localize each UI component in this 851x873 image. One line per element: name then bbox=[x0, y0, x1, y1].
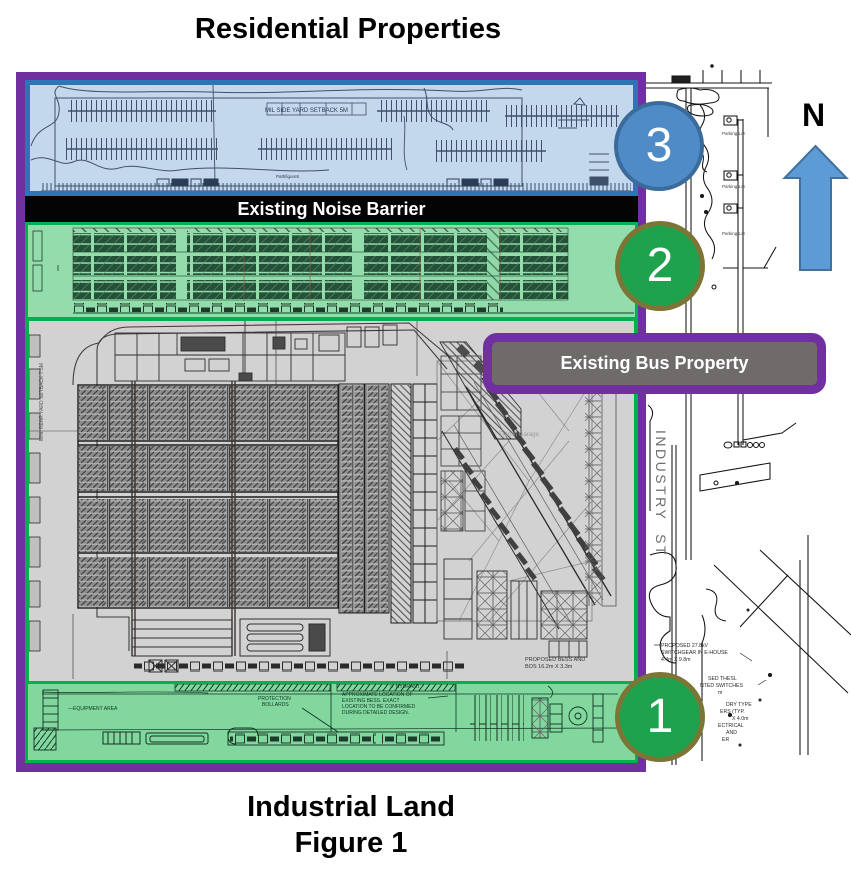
svg-text:SED THESL: SED THESL bbox=[708, 676, 737, 682]
svg-text:Parking Lot: Parking Lot bbox=[722, 131, 746, 136]
svg-text:NTED SWITCHES: NTED SWITCHES bbox=[700, 683, 743, 689]
svg-text:BOS 16.2m X 3.3m: BOS 16.2m X 3.3m bbox=[525, 664, 573, 670]
svg-text:□ HYDRANT: □ HYDRANT bbox=[390, 684, 420, 690]
svg-text:MIL SIDE YARD SETBACK 5M: MIL SIDE YARD SETBACK 5M bbox=[265, 108, 348, 114]
svg-text:BOLLARDS: BOLLARDS bbox=[262, 702, 289, 708]
svg-text:ERS (TYP.: ERS (TYP. bbox=[720, 709, 745, 715]
svg-text:MIN. REAR YARD SETBACK 7.5M: MIN. REAR YARD SETBACK 7.5M bbox=[39, 363, 45, 441]
svg-text:Transit Garage: Transit Garage bbox=[499, 432, 539, 438]
svg-text:PROPOSED 27.8kV: PROPOSED 27.8kV bbox=[661, 643, 709, 649]
svg-text:—EQUIPMENT AREA: —EQUIPMENT AREA bbox=[68, 706, 118, 712]
svg-text:SWITCHGEAR IN E-HOUSE: SWITCHGEAR IN E-HOUSE bbox=[661, 650, 728, 656]
svg-text:ECTRICAL: ECTRICAL bbox=[718, 723, 744, 729]
svg-text:PROPOSED BESS AND: PROPOSED BESS AND bbox=[525, 657, 585, 663]
svg-text:X 4.0m: X 4.0m bbox=[732, 716, 748, 722]
svg-text:DURING DETAILED DESIGN.: DURING DETAILED DESIGN. bbox=[342, 710, 409, 716]
svg-text:4.4m X 9.8m: 4.4m X 9.8m bbox=[661, 657, 690, 663]
svg-text:m: m bbox=[718, 690, 722, 696]
svg-text:DRY TYPE: DRY TYPE bbox=[726, 702, 752, 708]
svg-text:AND: AND bbox=[726, 730, 737, 736]
svg-text:Pathfigure5: Pathfigure5 bbox=[276, 174, 300, 179]
svg-text:Parking Lot: Parking Lot bbox=[722, 231, 746, 236]
svg-text:Parking Lot: Parking Lot bbox=[722, 184, 746, 189]
svg-text:ER: ER bbox=[722, 737, 729, 743]
